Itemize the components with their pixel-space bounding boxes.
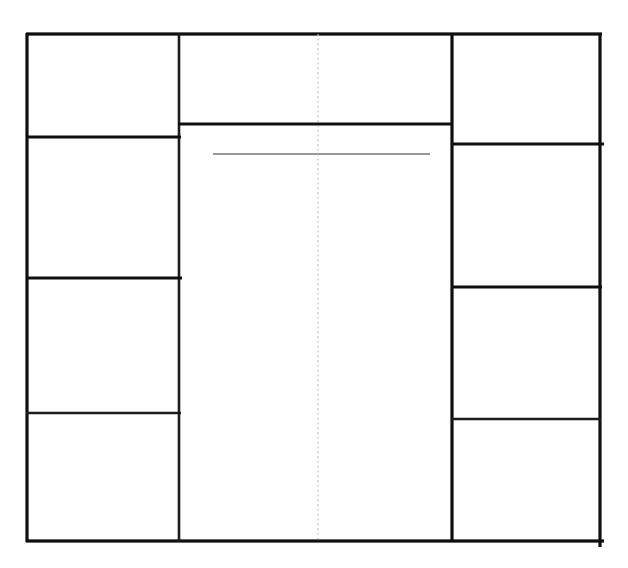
diagram-svg [0,0,628,568]
diagram-canvas [0,0,628,568]
